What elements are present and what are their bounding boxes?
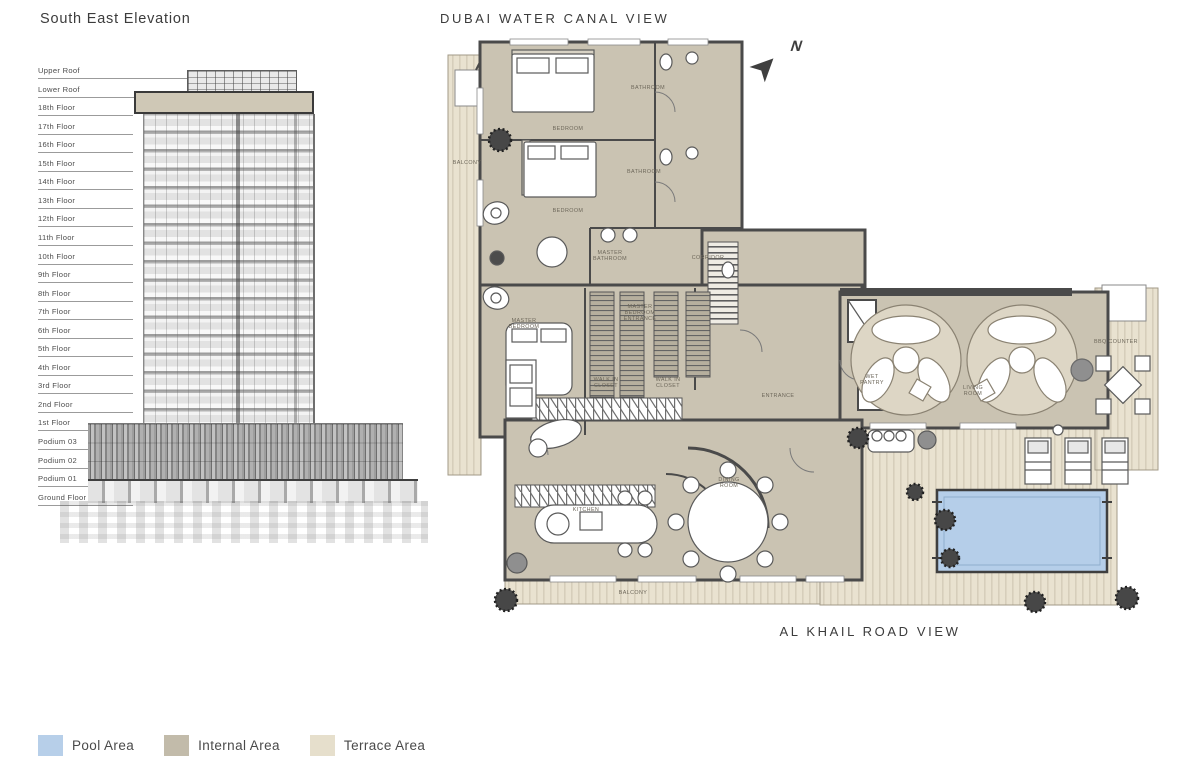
legend-item: Pool Area — [38, 735, 134, 756]
floor-label: 14th Floor — [38, 176, 133, 190]
elevation-drawing: Upper RoofLower Roof18th Floor17th Floor… — [30, 55, 435, 560]
floor-label: 5th Floor — [38, 343, 133, 357]
floor-plan: BALCONYBEDROOMBATHROOMBEDROOMBATHROOMMAS… — [440, 30, 1170, 620]
living-room-top-wall — [840, 288, 1072, 296]
floor-label: Lower Roof — [38, 84, 145, 98]
roof-slab — [134, 91, 314, 114]
legend-swatch — [38, 735, 63, 756]
basement-hatch — [60, 501, 428, 543]
legend-label: Internal Area — [198, 738, 280, 753]
north-letter: N — [788, 38, 804, 55]
floor-label: 15th Floor — [38, 158, 133, 172]
floor-plan-drawing — [440, 30, 1170, 620]
ground-floor-band — [88, 479, 418, 503]
floor-label: 2nd Floor — [38, 399, 133, 413]
floor-label: 17th Floor — [38, 121, 133, 135]
legend-swatch — [164, 735, 189, 756]
floor-label: 4th Floor — [38, 362, 133, 376]
tower-core-line — [236, 114, 240, 423]
legend-label: Pool Area — [72, 738, 134, 753]
tower-core-line-2 — [294, 114, 297, 423]
road-view-label: AL KHAIL ROAD VIEW — [660, 624, 1080, 639]
tower-facade — [143, 114, 315, 423]
floor-label: 6th Floor — [38, 325, 133, 339]
floor-label: Upper Roof — [38, 65, 188, 79]
floor-label: 18th Floor — [38, 102, 133, 116]
legend-item: Internal Area — [164, 735, 280, 756]
podium-facade — [88, 423, 403, 480]
floor-label: 12th Floor — [38, 213, 133, 227]
north-indicator: ➤ N — [748, 38, 804, 90]
north-arrow-icon: ➤ — [744, 46, 785, 87]
floor-label: 11th Floor — [38, 232, 133, 246]
floor-label: 16th Floor — [38, 139, 133, 153]
legend: Pool AreaInternal AreaTerrace Area — [38, 735, 425, 756]
canal-view-label: DUBAI WATER CANAL VIEW — [440, 11, 669, 26]
legend-swatch — [310, 735, 335, 756]
floor-label: 3rd Floor — [38, 380, 133, 394]
floor-label: 7th Floor — [38, 306, 133, 320]
floor-label: 10th Floor — [38, 251, 133, 265]
page: South East Elevation DUBAI WATER CANAL V… — [0, 0, 1200, 762]
floor-label: 8th Floor — [38, 288, 133, 302]
floor-label: 9th Floor — [38, 269, 133, 283]
legend-label: Terrace Area — [344, 738, 425, 753]
floor-label: 13th Floor — [38, 195, 133, 209]
elevation-title: South East Elevation — [40, 11, 191, 27]
legend-item: Terrace Area — [310, 735, 425, 756]
